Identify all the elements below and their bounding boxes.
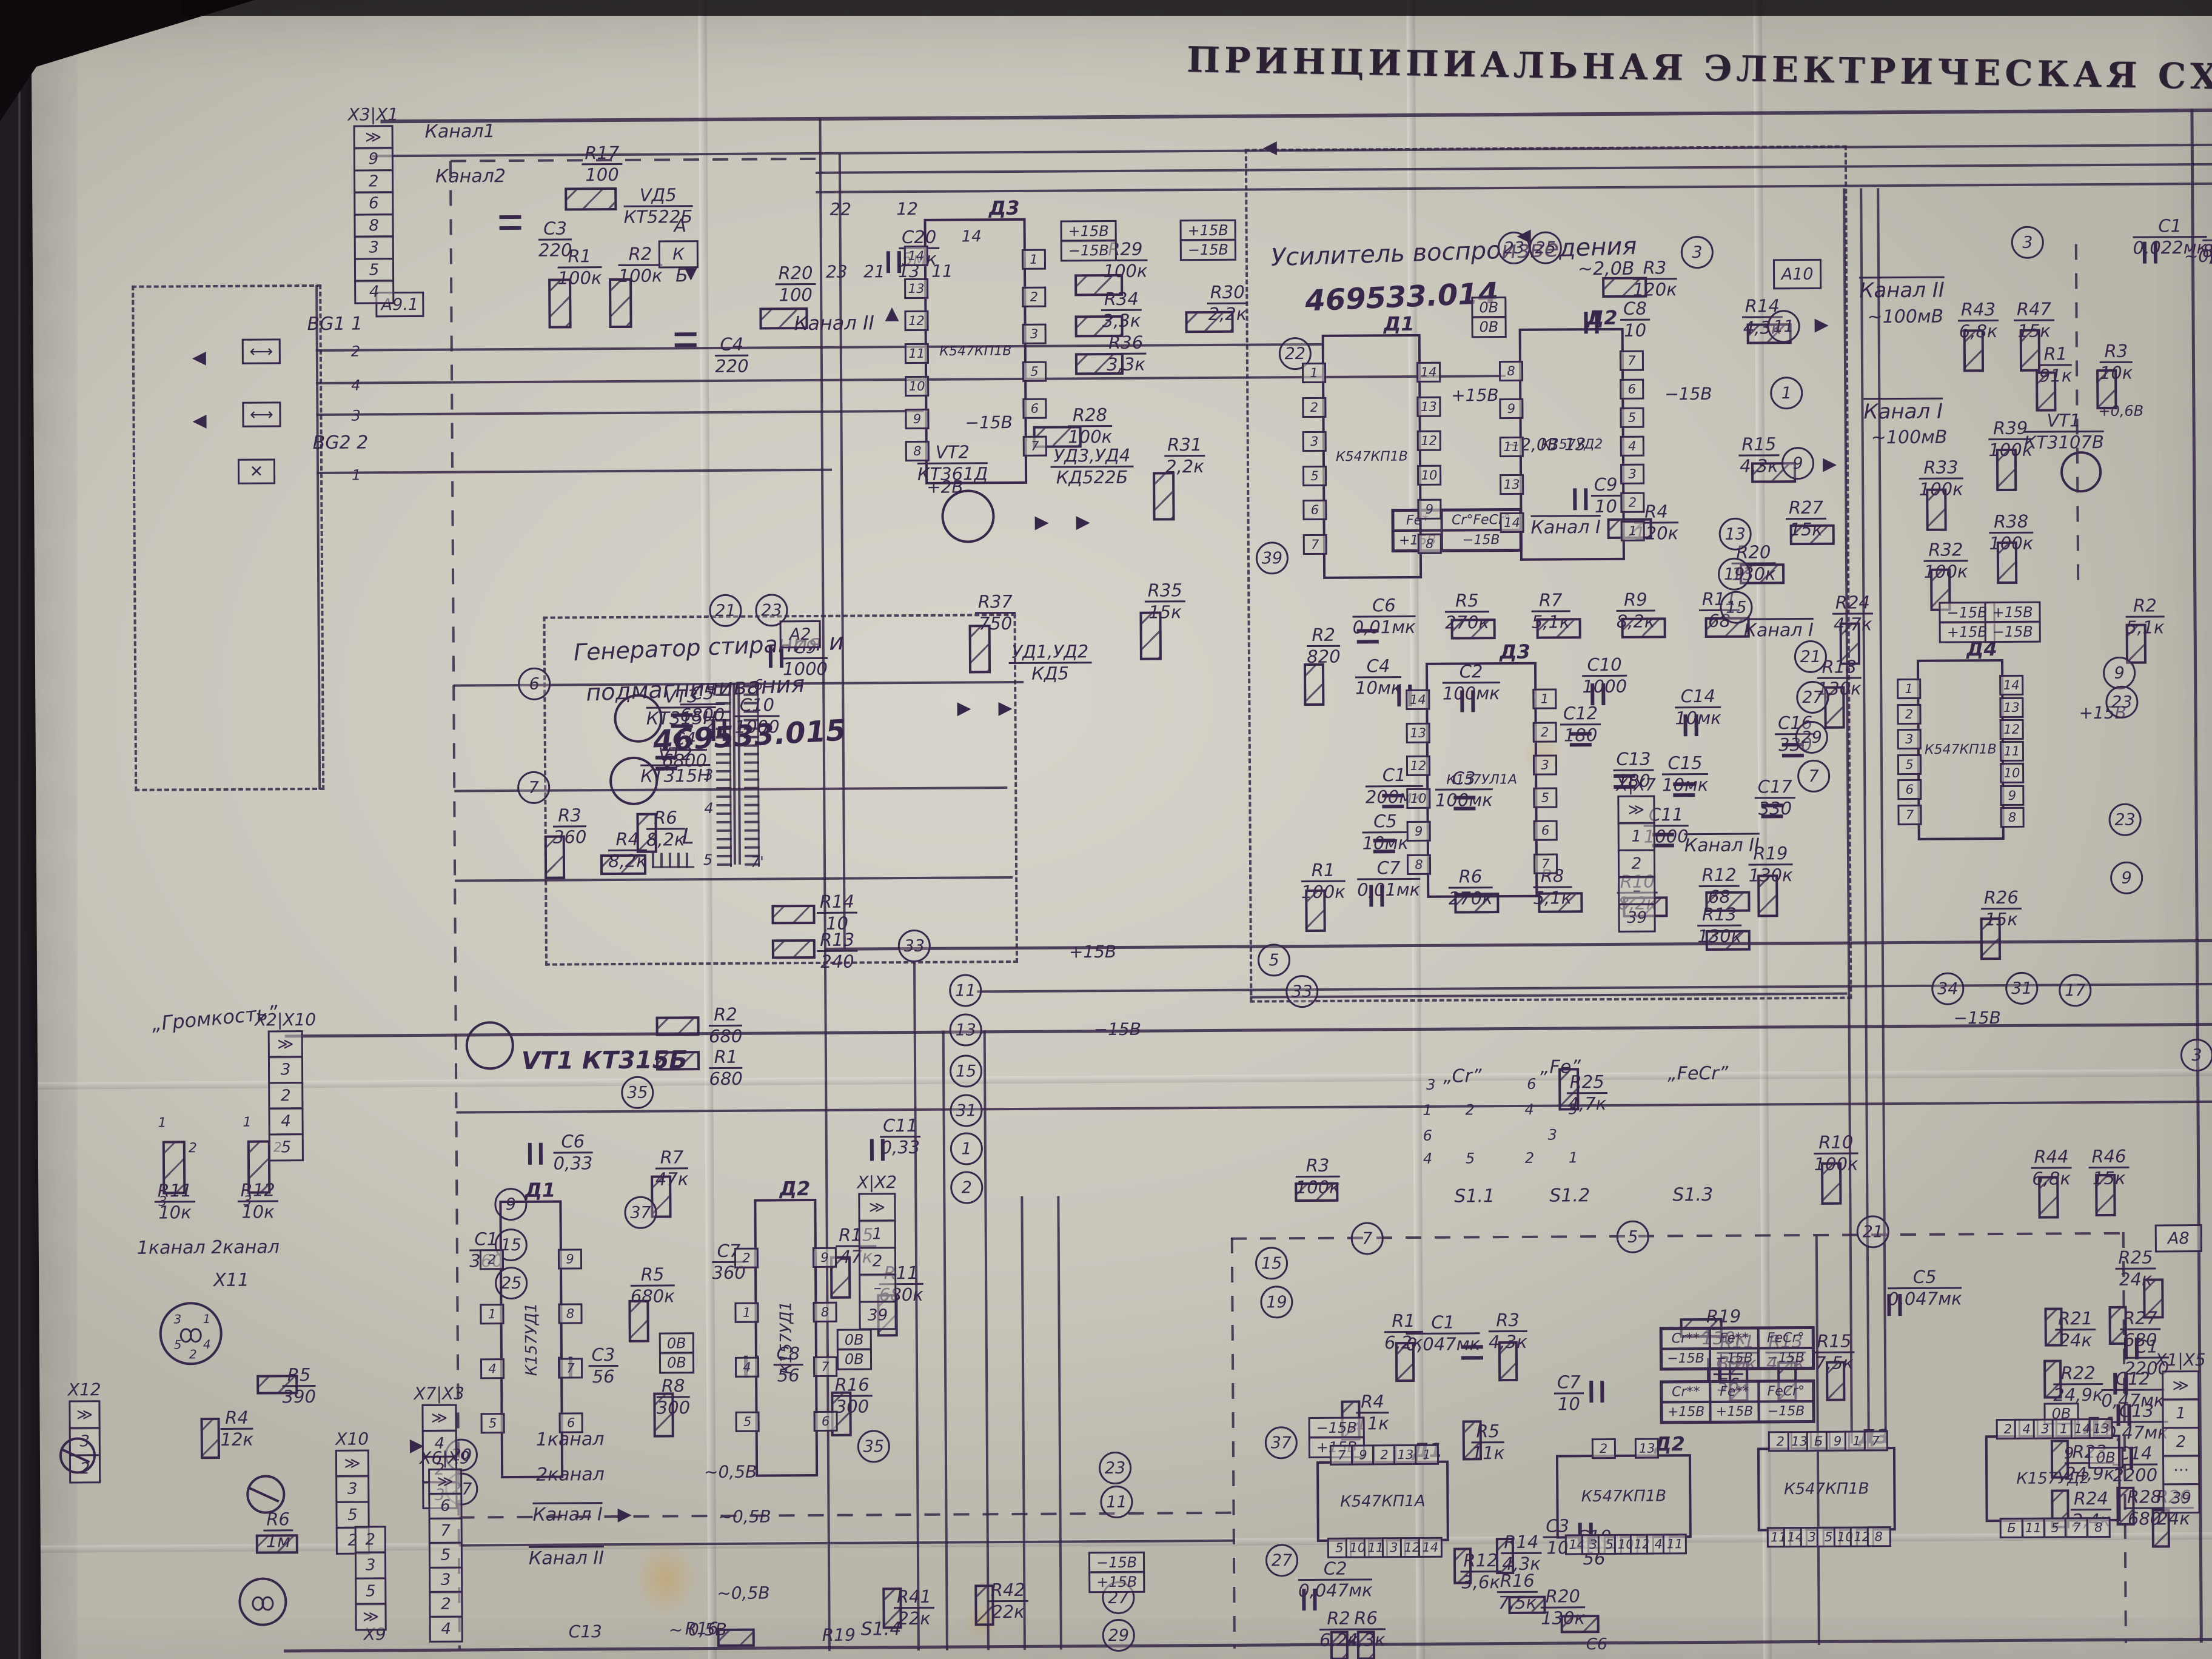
chip-pin: 14 [904,246,928,266]
capacitor-symbol [1369,885,1384,907]
chip-pin: 3 [1620,464,1644,484]
component-ref: R5 [1445,591,1489,613]
boxed-label: А10 [1773,259,1822,289]
net-number-text: 11 [1773,317,1794,336]
net-number: 3 [2180,1039,2212,1071]
component-ref: УД3,УД4 [1050,446,1133,468]
wire [984,1030,990,1650]
chip-pin: 3 [1897,729,1922,749]
screw-head-icon [246,1475,285,1513]
text-label: Канал1 [425,122,495,141]
net-number: 29 [1102,1619,1135,1652]
connector-header: Х|Х7 [1616,775,1656,795]
capacitor-symbol [2116,1404,2131,1426]
connector: Х|Х2≫12–39 [858,1195,896,1330]
net-number-text: 27 [1272,1551,1293,1570]
component-ref: R10 [1814,1133,1858,1155]
text-label: BG1 1 [307,315,363,334]
component-ref: С13 [1613,750,1654,772]
text-label: Канал II [1684,836,1760,855]
chip-pin: 3 [1302,431,1327,452]
boxed-label: ⟷ [242,338,281,364]
text-label: ~100мВ [1867,308,1943,327]
text-label: 6 [1423,1128,1432,1143]
connector: Х3|Х1≫9268354 [354,127,395,304]
ic-chip: Д2К547КП1В21314351012411 [1556,1454,1692,1538]
component-label: R312,2к [1164,435,1205,477]
text-label: 12 [896,201,918,218]
component-label: С110,33 [880,1116,921,1158]
dashed-wire [451,158,822,163]
chip-pin: 10 [2000,763,2024,783]
wire [285,1023,2212,1038]
power-tag-cell: +15В [1984,601,2040,623]
resistor-symbol [256,1375,298,1394]
chip-pin: 14 [1416,362,1441,383]
power-tag: 0В0В [659,1334,694,1373]
resistor-symbol [1074,274,1123,296]
capacitor-symbol [1382,794,1404,808]
net-number: 37 [624,1196,657,1229]
connector-pin: 6 [354,191,394,215]
connector-pin: 5 [429,1542,463,1569]
resistor-symbol [2038,1176,2059,1218]
table-cell: +15В [1661,1402,1710,1422]
power-tag-cell: 0В [837,1348,872,1370]
power-tag-cell: 0В [1471,316,1506,338]
chip-pin: 9 [813,1247,837,1268]
chip-pin: 13 [1999,697,2023,717]
net-number: 9 [2110,862,2143,894]
component-ref: R3 [1296,1156,1340,1178]
resistor-symbol [1395,1342,1415,1382]
component-ref: R2 [1307,626,1341,648]
head-switch-table: Cr**Fe**FeCr°−15В+15В−15В [1660,1326,1815,1371]
resistor-symbol [2043,1359,2062,1398]
connector: 235≫ [355,1527,387,1631]
text-label: 22 [829,201,851,218]
component-ref: С4 [1355,657,1402,679]
text-label: Канал2 [435,167,506,186]
chip-pin: 9 [905,408,929,429]
text-label: S1.1 [1454,1187,1495,1205]
net-number: 23 [1099,1452,1131,1484]
wire [380,109,2212,124]
component-ref: С6 [1352,596,1415,618]
text-label: 469533.014 [1304,279,1499,316]
component-value: 10 [1620,321,1650,341]
resistor-symbol [1463,1420,1482,1460]
component-label: R13240 [817,931,857,972]
resistor-symbol [1602,277,1647,298]
connector-pin: 8 [354,213,394,238]
connector-pin: 3 [429,1566,463,1593]
component-ref: R26 [1981,888,2022,910]
chip-pin: 6 [559,1412,583,1433]
net-number-text: 7 [529,778,539,797]
component-ref: С6 [553,1132,592,1154]
component-label: R1680 [709,1048,743,1089]
text-label: Канал I [532,1506,602,1524]
resistor-symbol [628,1300,649,1342]
resistor-symbol [1538,892,1583,913]
table-cell: FeCr° [1758,1381,1813,1402]
resistor-symbol [1537,618,1581,638]
inductor-symbol [743,685,760,867]
diode-symbol: ▶ [1076,513,1090,531]
capacitor-symbol [675,332,697,347]
connector-pin: 5 [355,1577,386,1605]
net-number: 27 [1265,1544,1298,1577]
connector-pin: 1 [2162,1398,2199,1429]
connector-header: Х10 [335,1429,369,1449]
ic-chip: Д3К547КП1В213Б91711143510128 [1757,1447,1896,1531]
net-number-text: 11 [955,981,976,1000]
chip-pin: 2 [1533,722,1557,742]
chip-pin: 8 [1407,854,1431,874]
resistor-symbol [2152,1509,2170,1547]
chip-pin: 3 [1533,754,1557,775]
connector-pin: ≫ [268,1030,303,1058]
chip-pin: 13 [1416,397,1441,417]
text-label: 3 [243,1195,252,1208]
table-cell: −15В [1758,1401,1813,1422]
connector-pin: ≫ [355,1603,386,1631]
component-ref: С14 [1675,687,1721,709]
resistor-symbol [2096,369,2117,409]
component-ref: R4 [2202,220,2212,242]
resistor-symbol [772,939,816,959]
chip-pin: 5 [1897,754,1922,775]
component-ref: R3 [2100,342,2133,364]
net-number-text: 9 [2114,663,2124,682]
component-label: С60,33 [553,1132,592,1173]
chip-pin: 6 [814,1411,838,1432]
resistor-symbol [1561,1615,1600,1633]
component-ref: R24 [1832,593,1873,615]
table-cell: −15В [1442,530,1521,551]
chip-pin: 8 [2086,1517,2111,1538]
connector-pin: – [859,1273,896,1302]
table-cell: Cr** [1661,1329,1710,1349]
net-number-text: 15 [956,1062,977,1081]
dashed-block-outline [132,284,324,791]
component-ref: VT1 [2023,411,2103,433]
ic-chip: Д3К157УЛ1А1413121098123567 [1426,662,1538,898]
connector-pin: 4 [354,280,394,304]
net-number-text: 5 [1269,951,1279,970]
component-ref: R46 [2088,1147,2129,1169]
resistor-symbol [1706,930,1751,951]
socket-pin-hole [261,1596,273,1610]
net-number: 13 [950,1013,982,1046]
text-label: ~0,5В [704,1464,757,1481]
net-number-text: 19 [1724,565,1745,583]
net-number-text: 15 [1261,1254,1282,1273]
resistor-symbol [1139,611,1161,660]
table-cell: Cr** [1661,1382,1710,1402]
resistor-symbol [609,278,632,328]
power-tag-cell: +15В [1180,219,1236,241]
boxed-label-text: ⟷ [249,342,273,361]
net-number: 31 [950,1094,982,1127]
net-number-text: 23 [2114,810,2136,829]
capacitor-symbol [2143,241,2157,263]
chip-pin: 8 [1418,533,1442,554]
chip-pin: 14 [1418,1537,1443,1558]
component-ref: R7 [655,1148,689,1170]
table-cell: +15В [1710,1349,1758,1369]
chip-pin: 1 [734,1302,759,1323]
connector: Х|Х7≫12–39 [1617,797,1655,933]
component-ref: С7 [1554,1373,1584,1395]
chip-pin: Б [1999,1518,2023,1538]
resistor-symbol [2095,1174,2116,1216]
net-number-text: 3 [2022,233,2033,252]
capacitor-symbol [1461,1345,1483,1359]
component-value: 12к [220,1430,253,1450]
component-ref: R4 [220,1409,253,1430]
component-value: КД5 [1009,664,1092,684]
transistor-symbol [2060,451,2102,492]
net-number-text: 35 [863,1437,885,1456]
capacitor-symbol [1673,782,1695,797]
chip-part-number: К547КП1В [1925,742,1997,758]
connector-pin: 2 [355,1526,386,1553]
wire [1877,188,1887,1443]
text-label: 23 [826,264,848,281]
net-number: 21 [1857,1215,1889,1248]
resistor-symbol [759,307,808,329]
chip-pin: 4 [480,1358,504,1379]
chip-pin: 10 [1417,464,1441,485]
inductor-symbol [716,685,732,867]
capacitor-symbol [2113,1373,2128,1395]
resistor-symbol [2143,1278,2163,1318]
net-number-text: 7 [1808,766,1818,785]
net-number-text: 21 [1800,647,1822,666]
resistor-symbol [1840,622,1860,665]
resistor-symbol [1705,891,1750,912]
component-ref: R4 [1356,1392,1389,1414]
connector-pin: 3 [335,1475,369,1503]
chip-pin: 5 [1302,466,1327,486]
net-number: 35 [621,1076,654,1109]
chip-pin: 9 [1499,398,1523,419]
connector: Х6|Х9≫675324 [428,1470,463,1643]
schematic-title: ПРИНЦИПИАЛЬНАЯ ЭЛЕКТРИЧЕСКАЯ СХЕМА МАГНИ… [1187,39,2212,104]
transistor-symbol [941,489,995,543]
component-value: 0,33 [880,1138,920,1158]
component-ref: R25 [2115,1248,2156,1270]
text-label: 4 [351,378,360,393]
component-ref: R12 [1699,866,1740,888]
wire-arrow: ▲ [885,304,899,323]
component-value: 220 [715,357,749,377]
net-number-text: 23 [2111,692,2133,711]
connector-header: Х7|Х3 [414,1384,464,1404]
connector-pin: 39 [1618,903,1655,932]
net-number-text: 9 [2121,868,2131,887]
net-number-text: 31 [2011,979,2033,997]
text-label: 3 [158,1196,167,1209]
text-label: 2 [1525,1151,1534,1165]
net-number-text: 3 [2191,1046,2202,1065]
component-ref: R3 [553,806,587,828]
headphone-jack-icon [238,1577,287,1626]
ic-chip: Д4К547КП1В123567141312111098 [1917,659,2005,840]
chip-pin: 9 [1407,821,1431,842]
chip-ref: Д2 [1587,306,1618,329]
net-number: 29 [1795,721,1828,754]
net-number-text: 35 [627,1083,648,1102]
chip-pin: 14 [1500,512,1524,532]
connector-pin: ≫ [421,1404,457,1432]
component-label: С4220 [715,335,749,377]
component-value: 56 [589,1367,618,1387]
screw-head-icon [59,1437,96,1473]
power-tag-cell: 0В [659,1332,694,1354]
chip-pin: 11 [1500,436,1524,457]
component-ref: R1 [1301,861,1346,883]
resistor-symbol [717,1629,755,1647]
chip-pin: 14 [1999,675,2023,695]
resistor-symbol [565,187,617,211]
resistor-symbol [974,1584,994,1626]
diode-symbol: ▶ [683,267,701,281]
table-cell: −15В [1758,1348,1813,1369]
chip-pin: 3 [1022,324,1047,344]
component-ref: R6 [1347,1609,1386,1631]
chip-pin: 9 [1417,499,1441,520]
diode-symbol: ▶ [957,699,971,717]
net-number-text: 17 [2065,981,2086,1000]
net-number-text: 21 [1862,1222,1883,1241]
resistor-symbol [600,854,646,875]
wire-arrow: ◀ [1263,138,1277,156]
chip-ref: Д1 [525,1179,555,1202]
wire [316,343,1322,352]
connector-pin: 7 [429,1517,463,1544]
text-label: „Cr” [1443,1067,1481,1085]
power-tag-cell: −15В [1309,1416,1365,1439]
resistor-symbol [1558,1068,1579,1110]
component-ref: R15 [1738,435,1779,457]
text-label: L [682,826,694,848]
text-label: Канал II [529,1549,604,1568]
connector-pin: 2 [859,1247,896,1276]
net-number: 19 [1260,1285,1293,1318]
chip-part-number: К157УД1 [522,1302,541,1376]
chip-ref: Д3 [1500,640,1530,663]
resistor-symbol [1757,874,1778,917]
net-number-text: 1 [1781,384,1792,403]
resistor-symbol [1153,472,1175,520]
power-tag-cell: −15В [1061,240,1117,262]
net-number: 15 [1255,1247,1288,1279]
chip-pin: 7 [1303,534,1327,554]
net-number: 34 [1931,972,1964,1005]
chip-part-number: К547КП1В [1784,1480,1869,1498]
chip-pin: 2 [1022,286,1046,307]
capacitor-symbol [1302,1589,1316,1610]
connector-pin: – [1618,876,1655,905]
net-number-text: 11 [1106,1492,1127,1511]
text-label: 2 [1465,1102,1474,1117]
resistor-symbol [969,625,991,673]
chip-pin: 5 [1533,788,1557,808]
boxed-label: А8 [2155,1224,2202,1252]
net-number: 9 [1781,447,1814,480]
chip-pin: 2 [734,1248,759,1269]
chip-pin: 7 [1897,804,1922,825]
component-ref: R7 [1531,591,1570,612]
chip-pin: 7 [1620,350,1644,371]
net-number-text: 5 [1627,1227,1638,1246]
boxed-label: А2 [780,620,821,648]
text-label: 2 [351,344,360,359]
text-label: 5 [703,853,712,867]
text-label: 1 [1569,1150,1578,1165]
diode-symbol: ▶ [1034,514,1048,532]
net-number-text: 15 [1726,598,1747,617]
connector-pin: ≫ [428,1468,462,1495]
text-label: +15В [1451,387,1498,404]
chip-pin: 1 [480,1304,504,1324]
chip-part-number: К547КП1В [1336,449,1408,464]
text-label: А [674,217,686,235]
capacitor-symbol [769,646,783,668]
chip-pin: 5 [481,1413,505,1433]
chip-pin: 4 [735,1357,759,1378]
chip-pin: 1 [1897,679,1921,699]
text-label: ~0,5В [717,1584,769,1602]
resistor-symbol [2036,371,2056,411]
chip-pin: 12 [2000,719,2024,740]
component-value: КД522Б [1051,468,1134,488]
text-label: 1 [158,1117,167,1130]
capacitor-symbol [2124,1338,2139,1359]
resistor-symbol [256,1534,298,1553]
connector-pin: ≫ [354,125,394,149]
boxed-label: ⟷ [242,401,281,427]
net-number: 21 [1794,640,1827,673]
component-ref: R44 [2031,1147,2071,1169]
connector-pin: ≫ [69,1400,100,1429]
resistor-symbol [1821,1162,1842,1205]
ic-chip: Д3К547КП1В141312111098123567 [923,218,1027,484]
chip-pin: 12 [1417,431,1441,451]
ic-chip: Д1К547КП1А7921315101131214 [1316,1461,1449,1542]
net-number: 15 [950,1054,982,1087]
component-ref: R1 [557,247,602,269]
component-value: 0,33 [554,1154,593,1174]
table-cell: Fe** [1710,1329,1758,1349]
chip-pin: 12 [1406,756,1430,776]
net-number: 11 [949,974,982,1007]
connector-pin: 2 [268,1082,303,1110]
chip-part-number: К547КП1В [939,343,1011,359]
chip-pin: 10 [905,376,929,397]
chip-pin: 5 [2043,1517,2067,1538]
net-number: 27 [1796,681,1829,714]
component-ref: R1 [2039,344,2073,366]
chip-pin: 8 [1866,1526,1891,1547]
resistor-symbol [1357,1631,1375,1659]
chip-pin: 4 [1620,435,1644,456]
text-label: +15В [1069,943,1116,960]
capacitor-symbol [1373,839,1395,853]
